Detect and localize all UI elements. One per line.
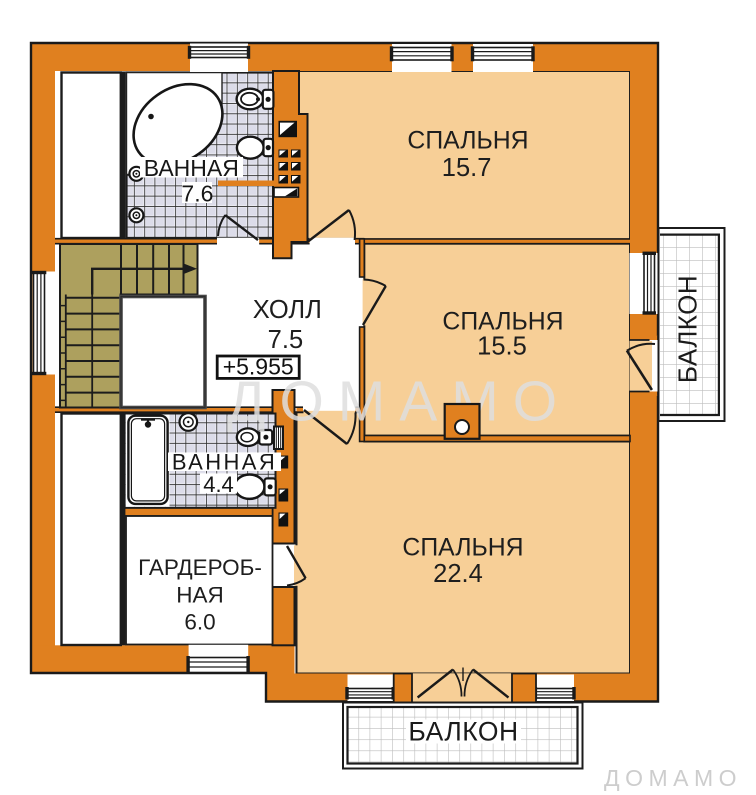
svg-text:15.7: 15.7	[442, 154, 492, 182]
svg-text:СПАЛЬНЯ: СПАЛЬНЯ	[402, 534, 523, 561]
svg-text:15.5: 15.5	[477, 332, 527, 360]
svg-text:НАЯ: НАЯ	[176, 583, 224, 608]
svg-text:СПАЛЬНЯ: СПАЛЬНЯ	[407, 127, 528, 154]
svg-text:БАЛКОН: БАЛКОН	[408, 717, 518, 747]
svg-text:ВАННАЯ: ВАННАЯ	[144, 155, 239, 181]
svg-text:+5.955: +5.955	[223, 354, 294, 380]
svg-text:7.6: 7.6	[181, 181, 213, 207]
svg-text:ДОМАМО: ДОМАМО	[604, 765, 742, 791]
svg-text:4.4: 4.4	[203, 472, 234, 497]
svg-text:БАЛКОН: БАЛКОН	[672, 275, 702, 383]
svg-text:ВАННАЯ: ВАННАЯ	[172, 450, 277, 475]
svg-text:7.5: 7.5	[268, 326, 303, 354]
svg-text:6.0: 6.0	[184, 610, 215, 635]
svg-text:ХОЛЛ: ХОЛЛ	[253, 296, 322, 324]
svg-text:ГАРДЕРОБ-: ГАРДЕРОБ-	[138, 555, 262, 580]
svg-text:22.4: 22.4	[433, 560, 483, 588]
